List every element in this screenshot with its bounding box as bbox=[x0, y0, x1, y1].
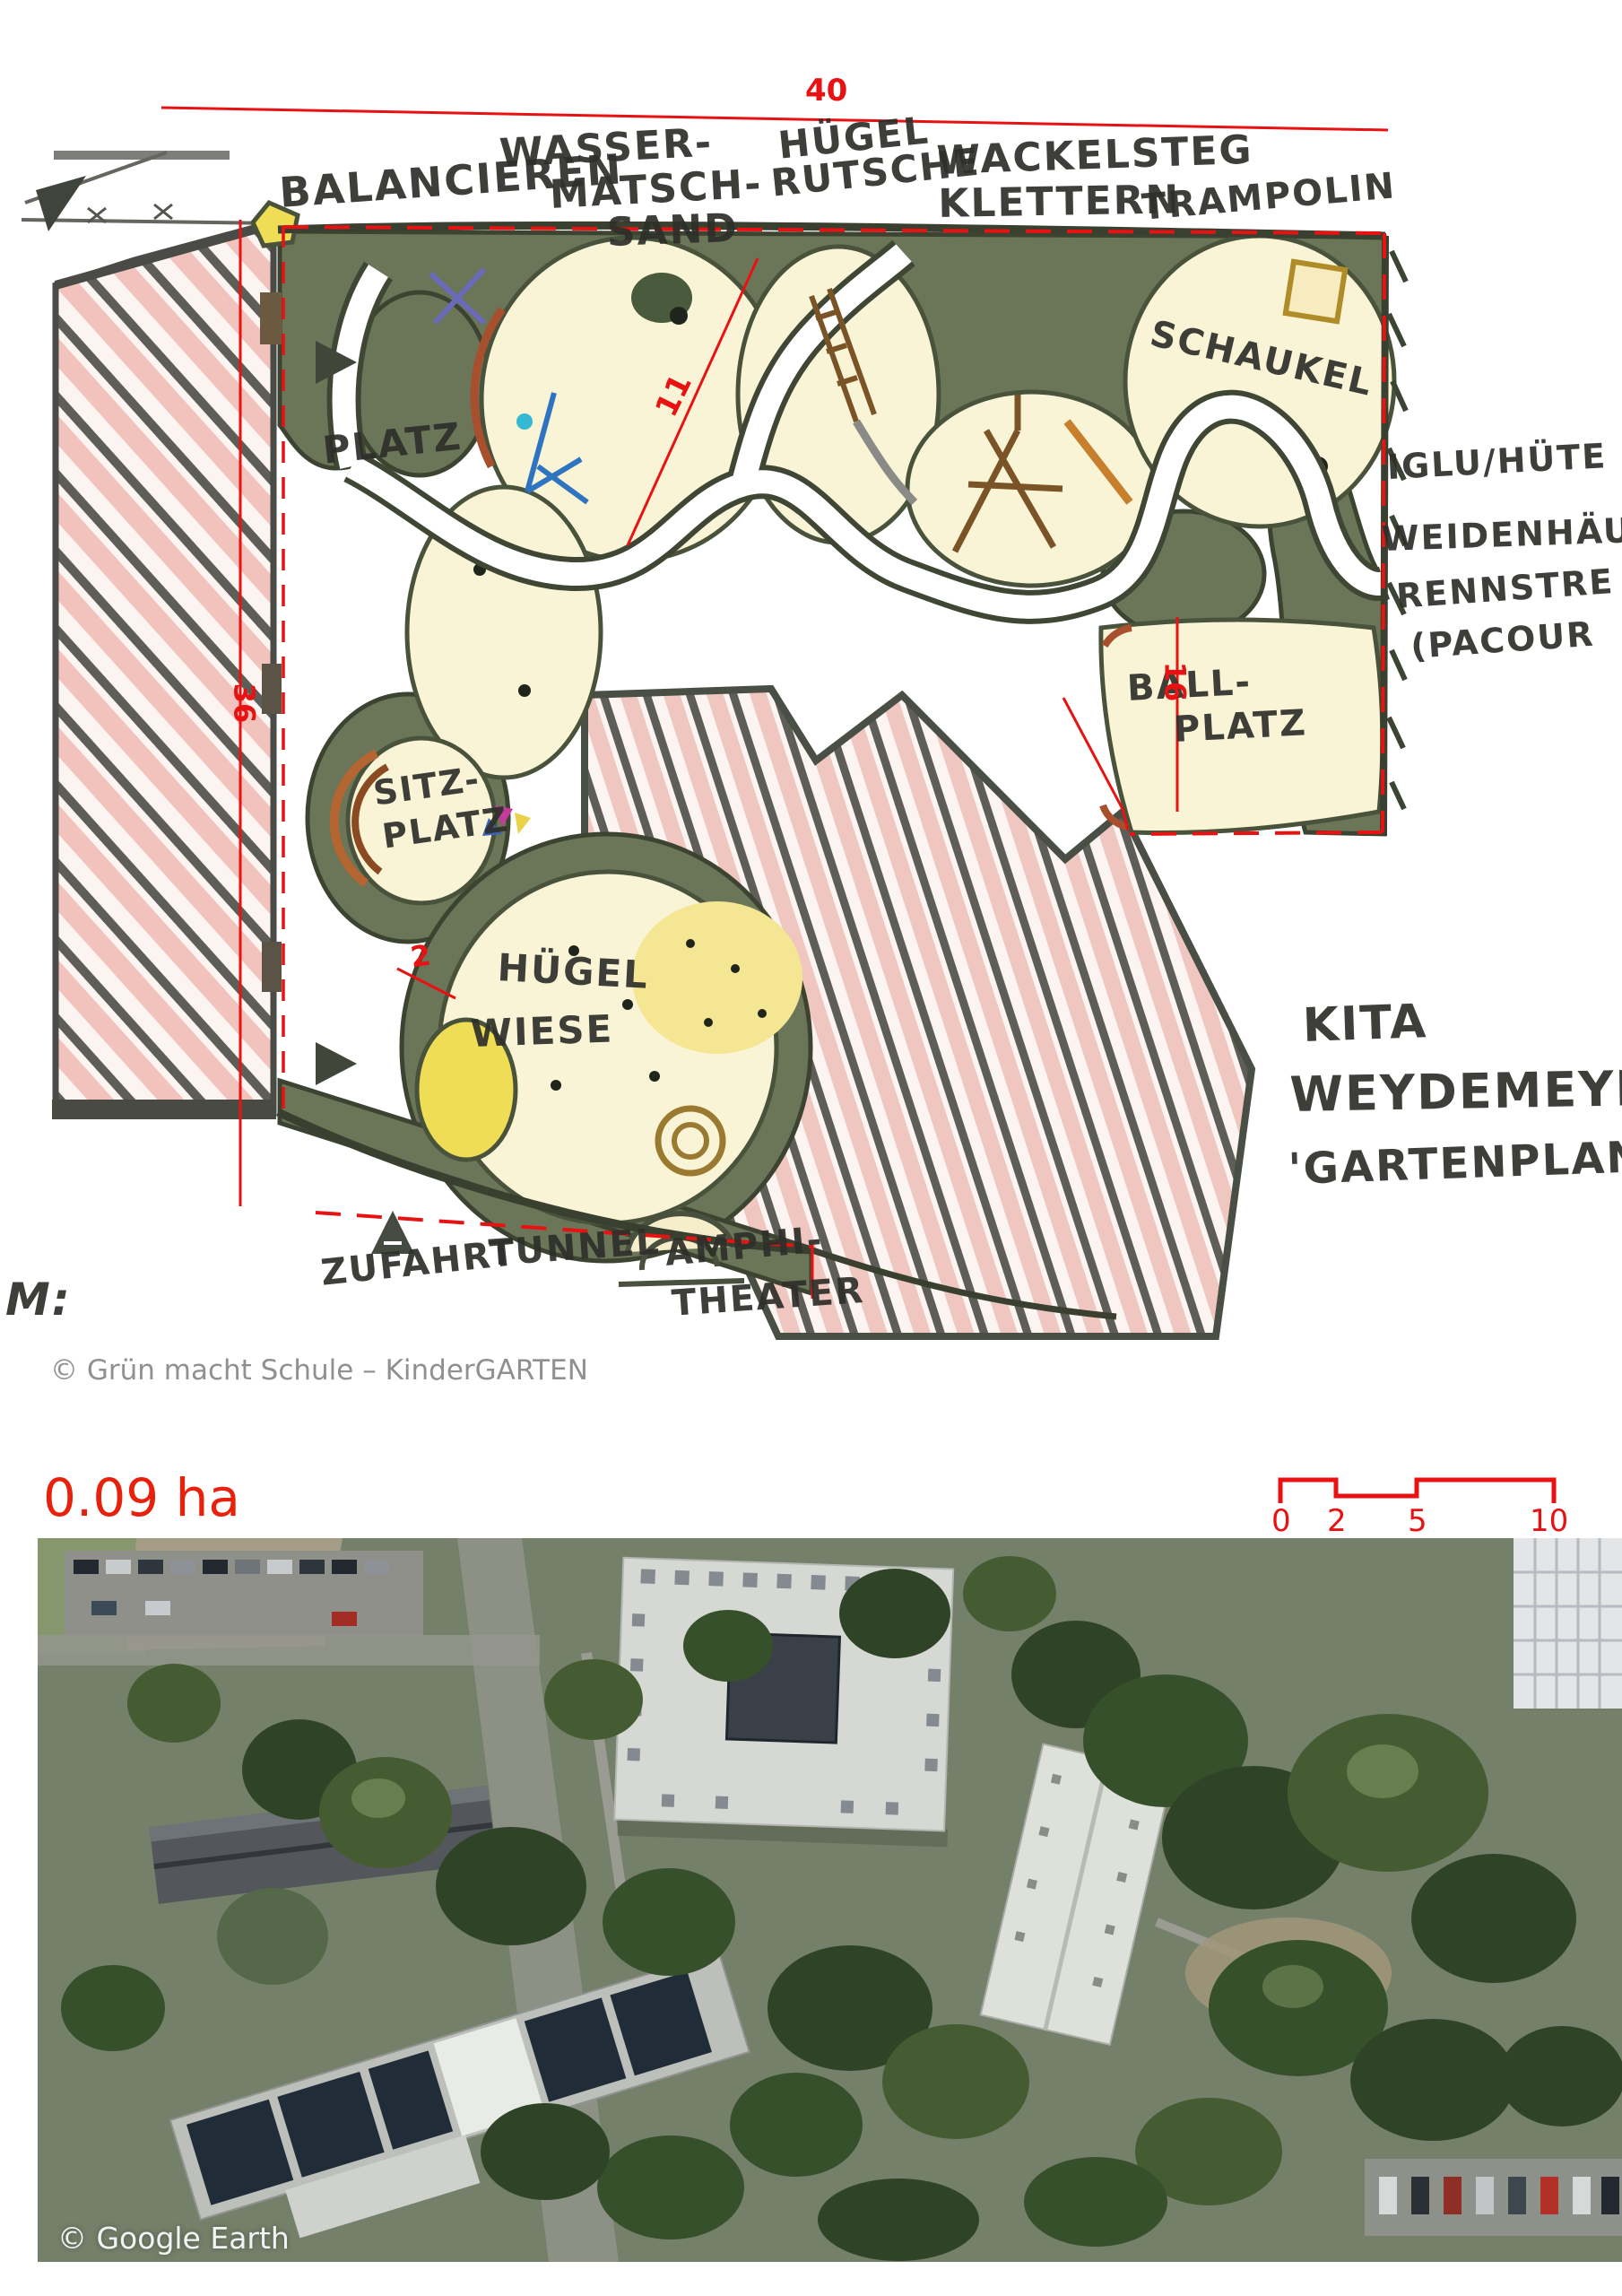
scale-tick-5: 5 bbox=[1408, 1503, 1427, 1539]
page: BALANCIEREN WASSER- MATSCH- SAND HÜGEL R… bbox=[0, 0, 1622, 2296]
aerial-photo bbox=[38, 1538, 1622, 2262]
parking-bottom-right bbox=[1365, 2159, 1622, 2236]
scale-tick-0: 0 bbox=[1271, 1503, 1291, 1539]
photo-credit: © Google Earth bbox=[57, 2221, 290, 2256]
scale-bar bbox=[0, 0, 1622, 1543]
building-highrise bbox=[1514, 1538, 1622, 1709]
scale-tick-2: 2 bbox=[1327, 1503, 1347, 1539]
parking-top-left bbox=[65, 1551, 423, 1637]
scale-tick-10: 10 bbox=[1530, 1503, 1568, 1539]
